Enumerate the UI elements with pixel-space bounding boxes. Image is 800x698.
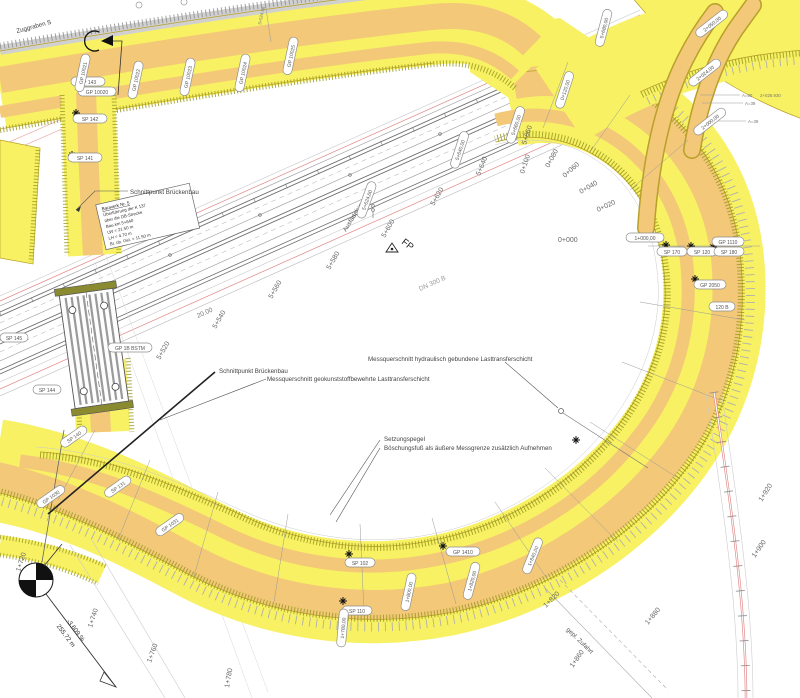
chainage-label: 0+020 — [596, 199, 617, 214]
svg-text:GP 1410: GP 1410 — [453, 550, 473, 556]
svg-text:GP 10020: GP 10020 — [86, 90, 109, 96]
svg-text:GP 1B BSTM: GP 1B BSTM — [115, 346, 145, 352]
chainage-label: 5+520 — [156, 340, 172, 361]
svg-text:120 B: 120 B — [715, 305, 729, 311]
chainage-label: 0+040 — [579, 180, 600, 196]
chainage-ring-labels: 0+000 0+020 0+040 0+060 0+080 0+100 — [519, 148, 617, 244]
road-areas — [0, 0, 800, 627]
chainage-label: 5+560 — [268, 279, 284, 300]
svg-text:SP 102: SP 102 — [352, 561, 369, 567]
station-2026-label: 2+026.930 — [760, 93, 781, 98]
survey-pill: SP 170 — [657, 247, 687, 256]
chainage-label: 1+740 — [87, 608, 100, 629]
mq-geokunststoff-label: Messquerschnitt geokunststoffbewehrte La… — [267, 376, 430, 383]
chainage-label: 5+640 — [475, 156, 489, 177]
svg-text:SP 170: SP 170 — [664, 250, 681, 256]
survey-pill: 5+624,00 — [356, 180, 377, 219]
chainage-rail-labels: 5+580 5+600 5+620 5+640 5+660 5+520 5+54… — [156, 125, 534, 361]
dn-pipe-label: DN 300 B — [418, 275, 448, 293]
mq-hydraulisch-label: Messquerschnitt hydraulisch gebundene La… — [368, 356, 533, 363]
survey-pill: SP 102 — [345, 558, 375, 567]
chainage-label: 0+060 — [562, 161, 581, 179]
chainage-label: 0+000 — [558, 237, 578, 244]
svg-text:1+000,00: 1+000,00 — [635, 236, 656, 242]
zuggraben-label: Zuggraben S — [16, 19, 52, 35]
svg-text:GP 1110: GP 1110 — [719, 240, 738, 246]
clothoid-a39-label-2: A=39 — [748, 119, 759, 124]
survey-pill: 1+000,00 — [626, 233, 664, 242]
chainage-label: 5+540 — [212, 309, 228, 330]
site-plan-canvas: Bauwerk Nr. 5 Überführung der K 137 über… — [0, 0, 800, 698]
setzungspegel-label: Setzungspegel — [384, 436, 425, 443]
svg-text:SP 142: SP 142 — [82, 117, 99, 123]
chainage-label: 5+580 — [326, 250, 342, 271]
chainage-label: 1+780 — [224, 668, 234, 689]
survey-pill: SP 144 — [33, 385, 61, 394]
chainage-label: 5+620 — [430, 186, 446, 207]
svg-text:SP 144: SP 144 — [39, 388, 56, 394]
chainage-label: 1+920 — [758, 483, 774, 503]
site-plan-drawing: Bauwerk Nr. 5 Überführung der K 137 über… — [0, 0, 800, 698]
schnittpunkt-brueckenbau-label-2: Schnittpunkt Brückenbau — [219, 368, 288, 375]
gradient-labels: -3.609 % 255.72 m — [55, 617, 86, 650]
chainage-label: 5+600 — [381, 218, 397, 239]
chainage-label: 1+760 — [146, 643, 159, 664]
clothoid-a80-label: A=80 — [742, 93, 753, 98]
svg-text:SP 141: SP 141 — [77, 156, 94, 162]
survey-pill: GP 1B BSTM — [108, 343, 152, 352]
survey-pill: SP 180 — [714, 247, 744, 256]
survey-pill: GP 2050 — [694, 280, 726, 289]
survey-pill: 120 B — [709, 302, 735, 311]
svg-text:SP 120: SP 120 — [694, 250, 711, 256]
schnittpunkt-brueckenbau-label-1: Schnittpunkt Brückenbau — [130, 189, 199, 196]
fp-label: FP — [399, 237, 415, 253]
survey-pill: GP 1410 — [446, 547, 480, 556]
clothoid-a39-label-1: A=39 — [745, 101, 756, 106]
survey-pill: SP 141 — [68, 153, 102, 162]
chainage-label: 1+860 — [569, 649, 586, 669]
boeschungsfuss-label: Böschungsfuß als äußere Messgrenze zusät… — [384, 445, 552, 452]
svg-text:SP 180: SP 180 — [721, 250, 738, 256]
fp-point-symbol — [386, 243, 398, 252]
survey-pill: SP 120 — [687, 247, 717, 256]
chainage-label: 1+880 — [644, 607, 662, 627]
dimension-20-label: 20.00 — [196, 307, 214, 320]
survey-pill: GP 1110 — [712, 237, 744, 246]
gradient-arrowhead-icon — [100, 672, 116, 687]
chainage-label: 0+100 — [519, 154, 532, 175]
svg-text:SP 110: SP 110 — [349, 609, 365, 615]
survey-pill: SP 142 — [73, 114, 107, 123]
survey-pill: SP 145 — [0, 333, 28, 342]
chainage-label: 1+900 — [751, 539, 768, 559]
svg-text:GP 2050: GP 2050 — [700, 283, 720, 289]
svg-text:SP 145: SP 145 — [6, 336, 23, 342]
